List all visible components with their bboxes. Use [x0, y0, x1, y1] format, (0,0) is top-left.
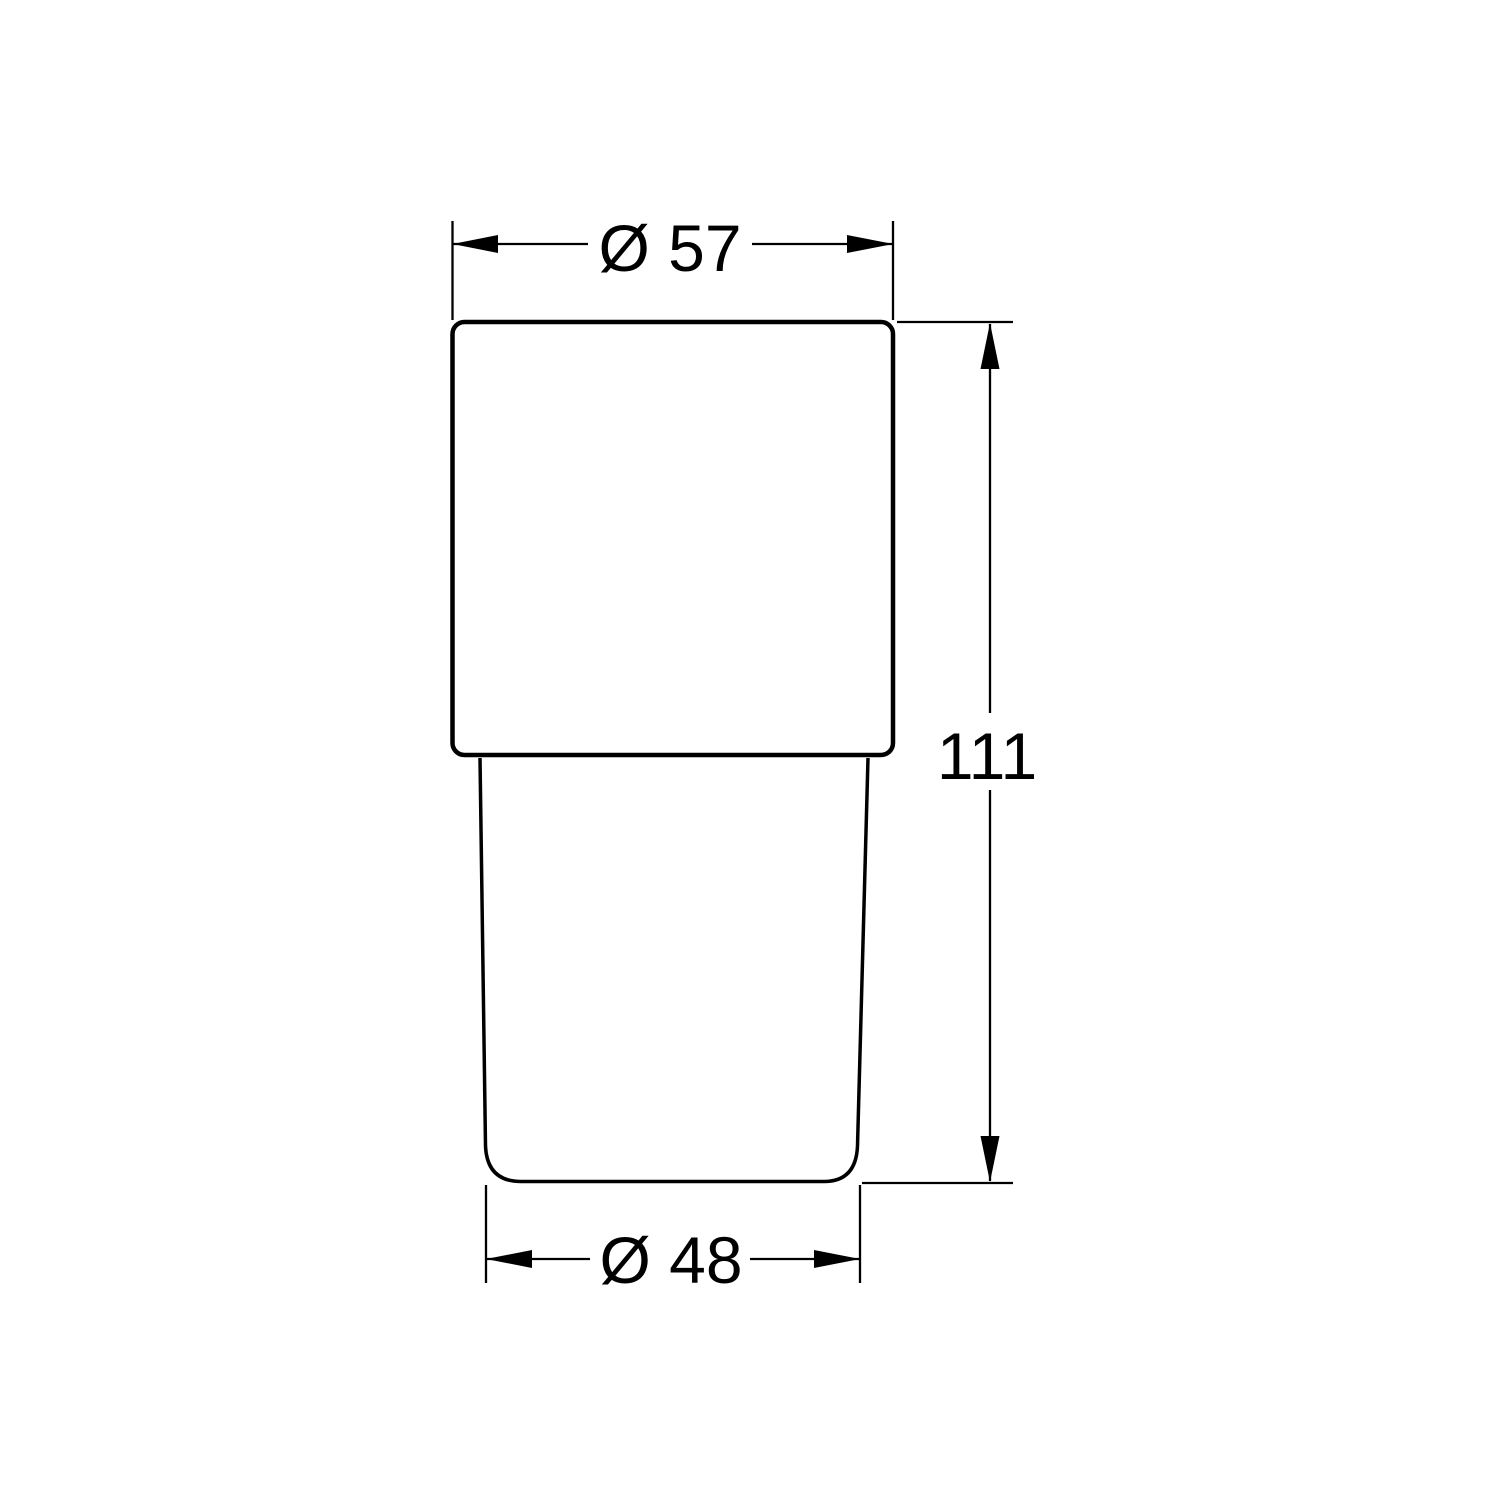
- dimension-label-height: 111: [937, 719, 1037, 793]
- dimension-label-top-diameter: Ø 57: [598, 211, 741, 285]
- arrow-up-icon: [981, 323, 1000, 369]
- tumbler-outline: [453, 322, 894, 1182]
- arrow-left-icon: [486, 1250, 532, 1268]
- dimension-bottom-diameter: Ø 48: [486, 1185, 860, 1297]
- arrow-right-icon: [847, 235, 893, 253]
- dimension-top-diameter: Ø 57: [453, 211, 894, 320]
- dimension-label-bottom-diameter: Ø 48: [599, 1223, 742, 1297]
- tumbler-dimension-drawing: Ø 57 111 Ø 48: [0, 0, 1500, 1500]
- tumbler-holder-outline: [453, 322, 894, 755]
- arrow-down-icon: [981, 1136, 1000, 1182]
- arrow-left-icon: [453, 235, 499, 253]
- tumbler-glass-outline: [480, 758, 868, 1182]
- drawing-page: Ø 57 111 Ø 48: [0, 0, 1500, 1500]
- arrow-right-icon: [814, 1250, 860, 1268]
